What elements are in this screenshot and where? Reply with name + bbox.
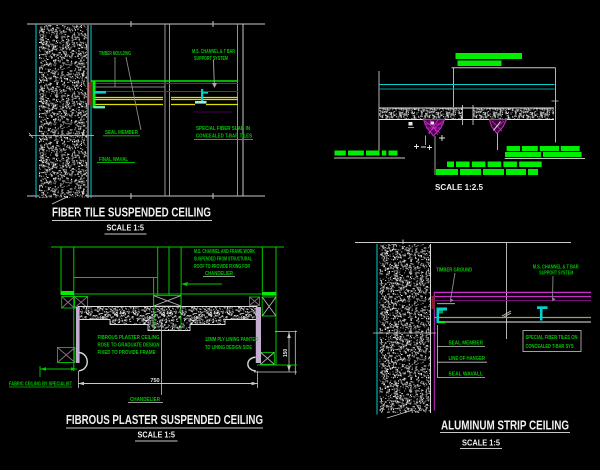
svg-text:SCALE 1:5: SCALE 1:5 xyxy=(462,438,500,448)
svg-text:SUSPENDED FROM STRUCTURAL: SUSPENDED FROM STRUCTURAL xyxy=(194,257,252,263)
svg-text:SEAL MEMBER: SEAL MEMBER xyxy=(449,341,484,347)
svg-text:CONCEALED T-BAR TILES: CONCEALED T-BAR TILES xyxy=(196,134,253,140)
svg-text:TIMBER GROUND: TIMBER GROUND xyxy=(436,268,472,274)
svg-text:CONCEALED T-BAR SYS: CONCEALED T-BAR SYS xyxy=(526,344,575,350)
svg-text:SEAL WAVALL: SEAL WAVALL xyxy=(449,372,484,378)
svg-text:12MM PLY LINING PAINTED: 12MM PLY LINING PAINTED xyxy=(205,337,258,343)
svg-text:TIMBER MOULDING: TIMBER MOULDING xyxy=(99,51,131,57)
svg-text:ALUMINUM STRIP CEILING: ALUMINUM STRIP CEILING xyxy=(441,419,569,433)
svg-text:SCALE 1:2.5: SCALE 1:2.5 xyxy=(435,182,483,192)
svg-text:FIBROUS PLASTER SUSPENDED CEIL: FIBROUS PLASTER SUSPENDED CEILING xyxy=(66,413,263,427)
svg-text:FINAL WAVAL: FINAL WAVAL xyxy=(99,157,128,163)
svg-text:FIBER TILE SUSPENDED CEILING: FIBER TILE SUSPENDED CEILING xyxy=(52,206,211,220)
svg-text:SPECIAL FIBER SLAB IN: SPECIAL FIBER SLAB IN xyxy=(196,126,250,132)
svg-text:SCALE 1:5: SCALE 1:5 xyxy=(138,430,176,440)
svg-text:SUPPORT SYSTEM: SUPPORT SYSTEM xyxy=(539,270,573,276)
svg-text:ROOF TO PROVIDE FIXING FOR: ROOF TO PROVIDE FIXING FOR xyxy=(194,264,250,270)
svg-text:SEAL MEMBER: SEAL MEMBER xyxy=(105,130,138,136)
svg-text:FIBROUS PLASTER CEILING: FIBROUS PLASTER CEILING xyxy=(98,335,160,341)
svg-text:FIXED TO PROVIDE FRAME: FIXED TO PROVIDE FRAME xyxy=(98,350,157,356)
svg-text:150: 150 xyxy=(283,349,289,358)
svg-text:SUPPORT SYSTEM: SUPPORT SYSTEM xyxy=(194,56,228,62)
svg-text:TO LINING DESIGN SIDE: TO LINING DESIGN SIDE xyxy=(205,345,253,351)
svg-text:750: 750 xyxy=(150,378,159,384)
svg-text:SPECIAL FIBER TILES ON: SPECIAL FIBER TILES ON xyxy=(526,335,578,341)
svg-text:LINE OF HANGER: LINE OF HANGER xyxy=(449,356,486,362)
svg-text:M.S. CHANNEL & T BAR: M.S. CHANNEL & T BAR xyxy=(192,49,235,55)
svg-text:SCALE 1:5: SCALE 1:5 xyxy=(107,223,145,233)
svg-text:ROSE TO GRADUATE DESIGN: ROSE TO GRADUATE DESIGN xyxy=(98,343,160,349)
svg-text:M.S. CHANNEL AND FRAME WORK: M.S. CHANNEL AND FRAME WORK xyxy=(194,249,255,255)
